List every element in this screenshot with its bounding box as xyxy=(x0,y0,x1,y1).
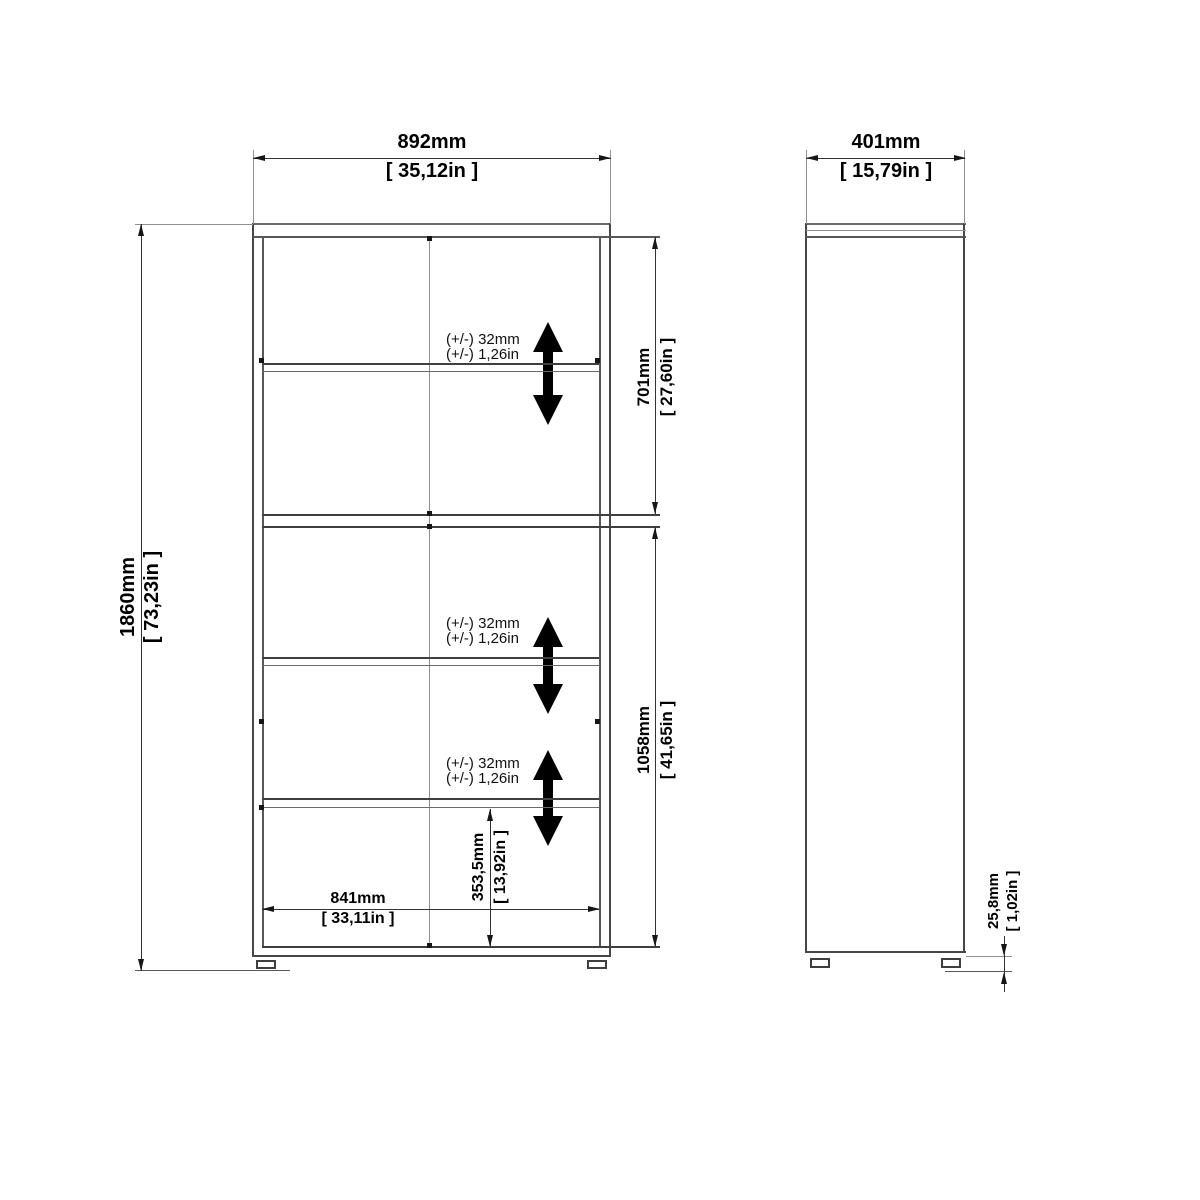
dim-width-front: 892mm [ 35,12in ] xyxy=(352,132,512,182)
side-left-edge xyxy=(805,223,807,953)
dim-bottom-compartment-in: [ 13,92in ] xyxy=(493,797,509,937)
dim-892-ext-left xyxy=(253,150,254,224)
dimension-arrowhead-icon xyxy=(253,155,265,161)
dim-depth-mm: 401mm xyxy=(806,132,966,153)
dim-258-ext-top xyxy=(966,956,1012,957)
connector-marker xyxy=(427,236,432,241)
dim-401-ext-right xyxy=(964,150,965,224)
dim-upper-in: [ 27,60in ] xyxy=(658,307,675,447)
side-right-edge xyxy=(963,223,965,953)
front-center-divider xyxy=(429,236,430,947)
dim-depth-side: 401mm [ 15,79in ] xyxy=(806,132,966,182)
dim-foot-height-mm: 25,8mm xyxy=(986,836,1001,966)
side-top-edge xyxy=(806,223,966,225)
adjustable-foot xyxy=(810,958,830,968)
front-fixed-shelf-bottom xyxy=(262,526,660,528)
dim-upper-mm: 701mm xyxy=(635,307,652,447)
side-bottom-edge xyxy=(806,951,966,953)
connector-marker xyxy=(259,358,264,363)
dim-width-in: [ 35,12in ] xyxy=(352,161,512,182)
shelf-note-2-mm: (+/-) 32mm xyxy=(446,616,520,631)
arrow-head-down xyxy=(533,816,563,846)
dim-height-mm: 1860mm xyxy=(118,497,138,697)
dim-width-mm: 892mm xyxy=(352,132,512,153)
dim-bottom-compartment-mm: 353,5mm xyxy=(471,797,487,937)
dim-701-line xyxy=(655,237,656,514)
front-left-inner-wall xyxy=(262,236,264,947)
front-shelf2-top xyxy=(262,657,599,659)
dimension-arrowhead-icon xyxy=(1001,972,1007,984)
front-left-edge xyxy=(252,223,254,957)
dim-depth-in: [ 15,79in ] xyxy=(806,161,966,182)
side-interior-top-line xyxy=(806,236,966,238)
shelf-note-1-in: (+/-) 1,26in xyxy=(446,347,520,362)
dim-foot-height-in: [ 1,02in ] xyxy=(1005,836,1020,966)
dim-401-ext-left xyxy=(806,150,807,224)
connector-marker xyxy=(595,358,600,363)
shelf-note-3-in: (+/-) 1,26in xyxy=(446,771,520,786)
arrow-shaft xyxy=(543,352,553,395)
front-right-edge xyxy=(609,223,611,957)
front-shelf3-top xyxy=(262,798,599,800)
front-top-edge xyxy=(253,223,611,225)
dim-892-ext-right xyxy=(610,150,611,224)
dim-1860-ext-top xyxy=(135,224,253,225)
shelf-note-2-in: (+/-) 1,26in xyxy=(446,631,520,646)
shelf-note-2: (+/-) 32mm (+/-) 1,26in xyxy=(446,616,520,646)
dim-401-line xyxy=(806,158,965,159)
dimension-arrowhead-icon xyxy=(652,502,658,514)
arrow-head-up xyxy=(533,322,563,352)
dimension-arrowhead-icon xyxy=(138,959,144,971)
dimension-arrowhead-icon xyxy=(652,237,658,249)
connector-marker xyxy=(427,511,432,516)
side-top-band-line xyxy=(806,230,966,231)
arrow-head-up xyxy=(533,750,563,780)
bookcase-dimension-diagram: 892mm [ 35,12in ] 401mm [ 15,79in ] 1860… xyxy=(0,0,1200,1200)
dim-lower-in: [ 41,65in ] xyxy=(658,670,675,810)
dim-interior-width-in: [ 33,11in ] xyxy=(288,910,428,927)
shelf-note-3-mm: (+/-) 32mm xyxy=(446,756,520,771)
dimension-arrowhead-icon xyxy=(487,935,493,947)
arrow-head-down xyxy=(533,395,563,425)
dim-892-line xyxy=(253,158,611,159)
dimension-arrowhead-icon xyxy=(954,155,966,161)
adjustable-foot xyxy=(587,960,607,969)
connector-marker xyxy=(427,524,432,529)
dimension-arrowhead-icon xyxy=(1001,944,1007,956)
front-floor-line xyxy=(135,970,290,971)
shelf-adjust-arrow-icon xyxy=(533,322,563,425)
dimension-arrowhead-icon xyxy=(487,809,493,821)
front-fixed-shelf-top xyxy=(262,514,660,516)
adjustable-foot xyxy=(941,958,961,968)
shelf-note-1-mm: (+/-) 32mm xyxy=(446,332,520,347)
dim-height-in: [ 73,23in ] xyxy=(142,497,162,697)
shelf-note-3: (+/-) 32mm (+/-) 1,26in xyxy=(446,756,520,786)
front-shelf1-top xyxy=(262,363,599,365)
dimension-arrowhead-icon xyxy=(652,527,658,539)
dim-841-line xyxy=(262,909,599,910)
dimension-arrowhead-icon xyxy=(588,906,600,912)
shelf-note-1: (+/-) 32mm (+/-) 1,26in xyxy=(446,332,520,362)
front-interior-bottom-line xyxy=(262,946,660,948)
front-bottom-edge xyxy=(253,955,611,957)
dim-353-line xyxy=(490,809,491,947)
dimension-arrowhead-icon xyxy=(138,224,144,236)
dim-lower-mm: 1058mm xyxy=(635,670,652,810)
front-right-inner-wall xyxy=(599,236,601,947)
connector-marker xyxy=(259,805,264,810)
dim-interior-width-mm: 841mm xyxy=(288,890,428,907)
dim-height: 1860mm [ 73,23in ] xyxy=(118,497,162,697)
connector-marker xyxy=(427,943,432,948)
arrow-head-up xyxy=(533,617,563,647)
dimension-arrowhead-icon xyxy=(599,155,611,161)
connector-marker xyxy=(595,719,600,724)
connector-marker xyxy=(259,719,264,724)
front-shelf2-bottom xyxy=(262,665,599,666)
dimension-arrowhead-icon xyxy=(806,155,818,161)
dimension-arrowhead-icon xyxy=(652,935,658,947)
arrow-head-down xyxy=(533,684,563,714)
dim-1058-line xyxy=(655,527,656,947)
front-shelf3-bottom xyxy=(262,807,599,808)
front-shelf1-bottom xyxy=(262,371,599,372)
dim-1860-line xyxy=(141,224,142,971)
dimension-arrowhead-icon xyxy=(262,906,274,912)
adjustable-foot xyxy=(256,960,276,969)
